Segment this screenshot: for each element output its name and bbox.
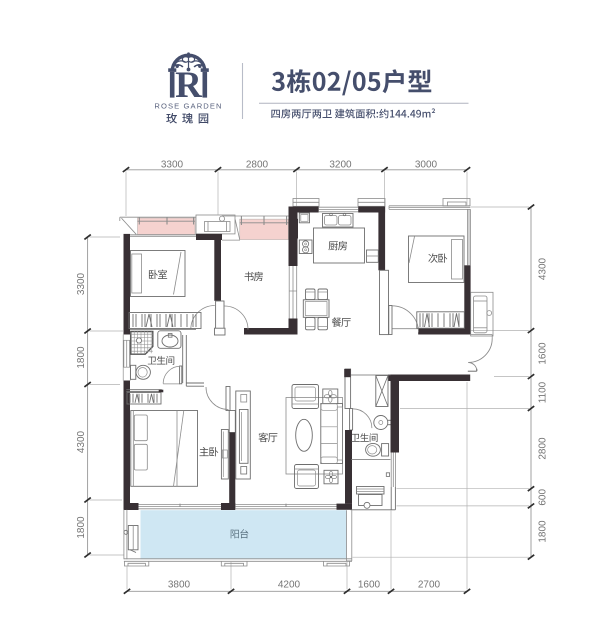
svg-text:1100: 1100 bbox=[537, 381, 548, 403]
svg-text:600: 600 bbox=[537, 489, 548, 506]
svg-text:3800: 3800 bbox=[168, 580, 191, 591]
svg-text:3300: 3300 bbox=[161, 160, 184, 171]
svg-text:1600: 1600 bbox=[358, 580, 381, 591]
svg-text:4200: 4200 bbox=[278, 580, 301, 591]
svg-text:4300: 4300 bbox=[537, 257, 548, 280]
svg-text:3000: 3000 bbox=[415, 160, 438, 171]
svg-text:2700: 2700 bbox=[418, 580, 441, 591]
svg-text:2800: 2800 bbox=[246, 160, 269, 171]
svg-text:1800: 1800 bbox=[76, 516, 87, 539]
svg-text:1800: 1800 bbox=[537, 520, 548, 543]
svg-text:3300: 3300 bbox=[76, 272, 87, 295]
svg-text:ROSE GARDEN: ROSE GARDEN bbox=[154, 102, 222, 111]
svg-text:4300: 4300 bbox=[76, 430, 87, 453]
svg-text:R: R bbox=[175, 65, 203, 106]
svg-text:1800: 1800 bbox=[76, 346, 87, 369]
svg-text:2800: 2800 bbox=[537, 437, 548, 460]
svg-text:3200: 3200 bbox=[329, 160, 352, 171]
svg-text:1600: 1600 bbox=[537, 342, 548, 365]
